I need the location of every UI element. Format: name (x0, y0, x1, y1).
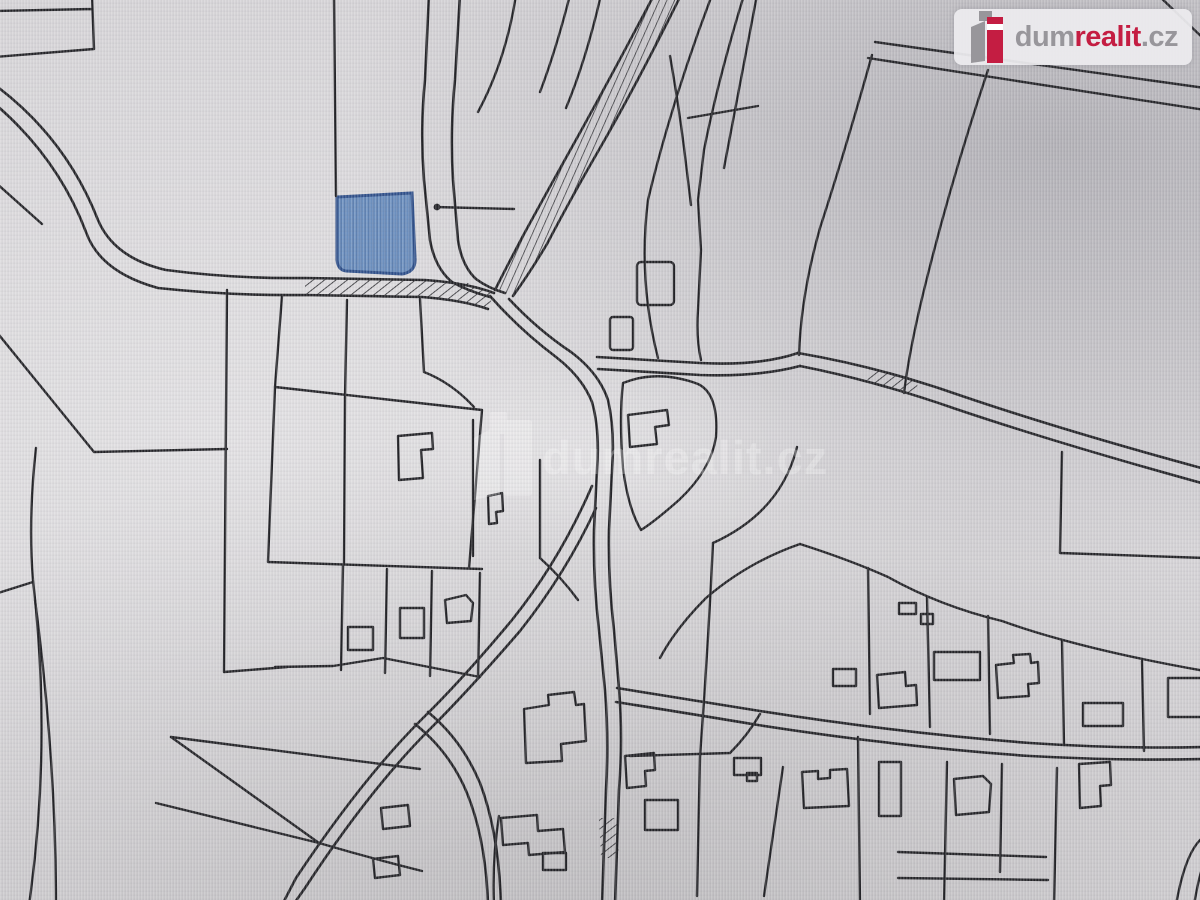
highlighted-parcel[interactable] (337, 193, 415, 274)
dumrealit-logo-text: dumrealit.cz (1015, 23, 1178, 52)
screenshot-root: dumrealit.cz dumrealit.cz (0, 0, 1200, 900)
dumrealit-logo-icon (964, 11, 1006, 63)
logo-text-highlight: realit (1074, 21, 1140, 53)
highlighted-parcel-stripes (337, 193, 415, 274)
logo-text-prefix: dum (1015, 21, 1075, 53)
logo-text-suffix: .cz (1141, 21, 1178, 53)
watermark-text: dumrealit.cz (542, 431, 828, 484)
cadastral-map: dumrealit.cz (0, 0, 1200, 900)
dumrealit-logo[interactable]: dumrealit.cz (954, 9, 1192, 65)
survey-point (434, 204, 441, 211)
